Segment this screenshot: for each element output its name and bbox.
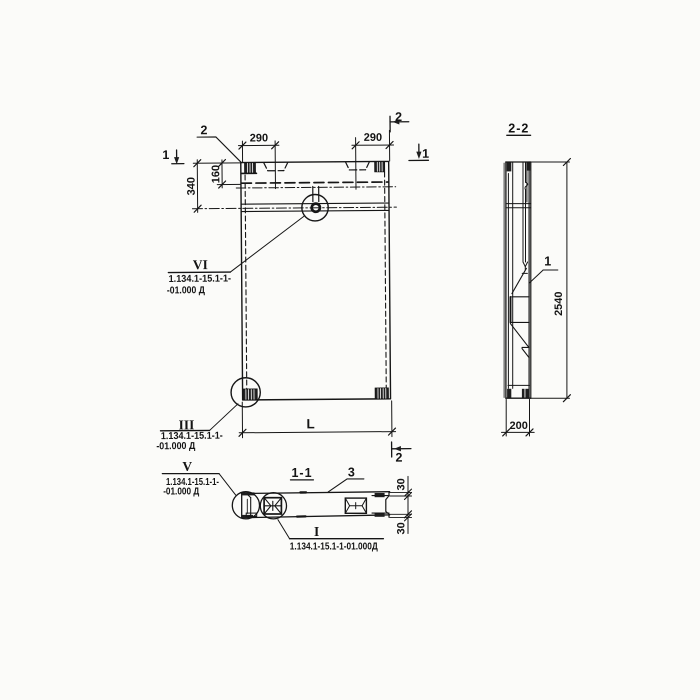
svg-text:340: 340 [186,177,198,195]
svg-text:-01.000 Д: -01.000 Д [156,441,195,452]
svg-text:290: 290 [250,132,268,144]
svg-text:1: 1 [162,148,169,162]
svg-text:2: 2 [395,451,402,465]
svg-text:2: 2 [200,123,207,137]
svg-text:2: 2 [395,110,402,124]
svg-text:30: 30 [396,522,408,534]
svg-text:30: 30 [396,478,408,490]
svg-text:1: 1 [422,147,429,161]
svg-text:290: 290 [364,132,382,144]
svg-text:160: 160 [210,165,222,183]
svg-text:-01.000 Д: -01.000 Д [167,285,205,296]
svg-text:1.134.1-15.1-1-: 1.134.1-15.1-1- [169,273,232,284]
svg-text:200: 200 [510,420,528,432]
svg-text:V: V [182,459,192,474]
svg-text:2540: 2540 [553,291,565,315]
svg-text:L: L [306,416,314,431]
svg-text:VI: VI [193,257,208,272]
svg-text:2-2: 2-2 [508,121,529,135]
svg-text:1: 1 [544,255,551,269]
svg-text:1.134.1-15.1-1-01.000Д: 1.134.1-15.1-1-01.000Д [290,542,378,553]
svg-text:3: 3 [348,465,355,479]
svg-text:I: I [314,524,319,539]
svg-text:-01.000 Д: -01.000 Д [163,486,199,497]
svg-text:1-1: 1-1 [291,466,312,480]
